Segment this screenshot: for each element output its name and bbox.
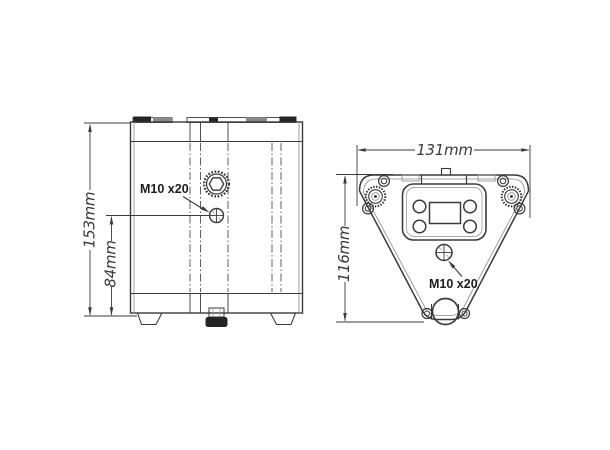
panel-button-bottom-right	[464, 220, 477, 233]
cap-lines	[190, 122, 228, 313]
top-nub	[442, 169, 451, 176]
corner-screws-left	[363, 176, 390, 214]
panel-button-top-right	[464, 200, 477, 213]
dim-label-84: 84mm	[102, 240, 120, 287]
leader-line	[183, 197, 203, 210]
bolt-label-top: M10 x20	[429, 277, 478, 291]
dim-label-116: 116mm	[335, 226, 353, 282]
arrow-down-icon	[110, 307, 114, 316]
bolt-callout-top: M10 x20	[429, 261, 478, 292]
bolt-callout-side: M10 x20	[140, 182, 210, 213]
control-panel	[403, 184, 487, 240]
drawing-canvas: 153mm 84mm M10 x20	[0, 0, 610, 450]
dimension-131: 131mm	[357, 141, 530, 218]
leader-arrow-icon	[201, 206, 210, 212]
screw-icon	[379, 176, 390, 187]
arrow-left-icon	[357, 148, 366, 152]
foot-right	[271, 313, 296, 325]
arrow-right-icon	[521, 148, 530, 152]
arrow-down-icon	[343, 313, 347, 322]
arrow-up-icon	[88, 124, 92, 133]
panel-button-bottom-left	[413, 220, 426, 233]
arrow-up-icon	[343, 175, 347, 184]
m10-bolt-icon-top	[436, 245, 452, 261]
m10-bolt-icon-side	[210, 209, 224, 223]
leader-line	[453, 266, 462, 277]
dim-label-153: 153mm	[81, 192, 99, 248]
foot-left	[138, 313, 163, 325]
dimension-84: 84mm	[102, 216, 210, 316]
panel-button-top-left	[413, 200, 426, 213]
bottom-port	[422, 299, 470, 325]
drain-knob-icon	[206, 308, 228, 327]
arrow-down-icon	[88, 307, 92, 316]
top-view: 131mm 116mm M10 x20	[335, 141, 530, 325]
display-window	[430, 203, 461, 224]
technical-drawing: 153mm 84mm M10 x20	[0, 0, 610, 450]
hinge-block	[402, 169, 495, 185]
dim-label-131: 131mm	[416, 141, 472, 159]
screw-icon	[498, 176, 509, 187]
port-hole	[433, 299, 459, 325]
bolt-label-side: M10 x20	[140, 182, 189, 196]
arrow-up-icon	[110, 216, 114, 225]
center-lines	[190, 143, 281, 292]
hex-plug-icon	[204, 172, 229, 197]
side-view: 153mm 84mm M10 x20	[81, 117, 303, 328]
